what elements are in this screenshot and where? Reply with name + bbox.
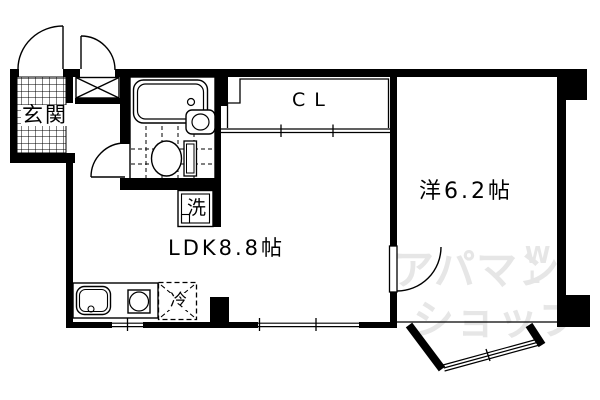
fridge-label: 冷 xyxy=(169,293,188,310)
wall-entrance-right-upper xyxy=(66,77,73,103)
kitchen xyxy=(73,283,158,318)
wall-bay-right-diagonal xyxy=(529,325,542,345)
western-room-door-panel xyxy=(390,246,398,292)
western-room-label: 洋6.2帖 xyxy=(419,181,513,203)
bay-window-line3 xyxy=(445,345,540,371)
stove-burner xyxy=(130,292,149,311)
wall-right xyxy=(557,100,566,295)
ldk-label: LDK8.8帖 xyxy=(168,238,285,259)
closet-label: CL xyxy=(292,91,334,110)
floorplan: アパマン W L ショップ xyxy=(0,0,600,400)
wall-top-main xyxy=(115,69,587,77)
wall-bottom-mid xyxy=(143,322,258,328)
washer-label: 洗 xyxy=(187,199,206,218)
bathroom-door-arc xyxy=(91,143,125,177)
wall-corner-bottom-right xyxy=(557,295,590,327)
wall-corner-top-right xyxy=(557,77,587,100)
wall-entrance-bottom xyxy=(10,153,75,163)
wall-bottom-left xyxy=(66,322,112,328)
bay-window-line2 xyxy=(444,342,539,368)
wall-top-between-doors xyxy=(63,69,80,77)
bay-window-line1 xyxy=(443,339,538,365)
stove-outline xyxy=(128,290,150,313)
wall-entrance-left xyxy=(10,69,17,163)
wall-bay-left-diagonal xyxy=(409,325,442,369)
meterbox-door-arc xyxy=(81,36,115,70)
toilet-bowl xyxy=(152,141,182,176)
wall-bathroom-right xyxy=(215,77,221,178)
toilet-tank xyxy=(184,141,197,176)
bathroom xyxy=(130,77,215,180)
wall-washer-stub xyxy=(213,190,221,227)
wall-closet-left-stub xyxy=(221,77,228,106)
wall-bathroom-left-upper xyxy=(120,77,130,144)
bathtub-drain xyxy=(188,99,195,106)
wall-meterbox-bottom xyxy=(75,98,120,104)
wall-bottom-right xyxy=(359,322,397,328)
walls xyxy=(10,69,590,369)
wall-ldk-left xyxy=(66,153,73,328)
entrance-door-arc xyxy=(18,26,63,69)
entrance-label: 玄関 xyxy=(21,105,69,126)
western-room-door-arc xyxy=(397,247,441,291)
meterbox-shaft xyxy=(76,78,119,99)
wall-ldk-western-upper xyxy=(390,77,397,246)
wall-bottom-pillar xyxy=(210,297,229,328)
